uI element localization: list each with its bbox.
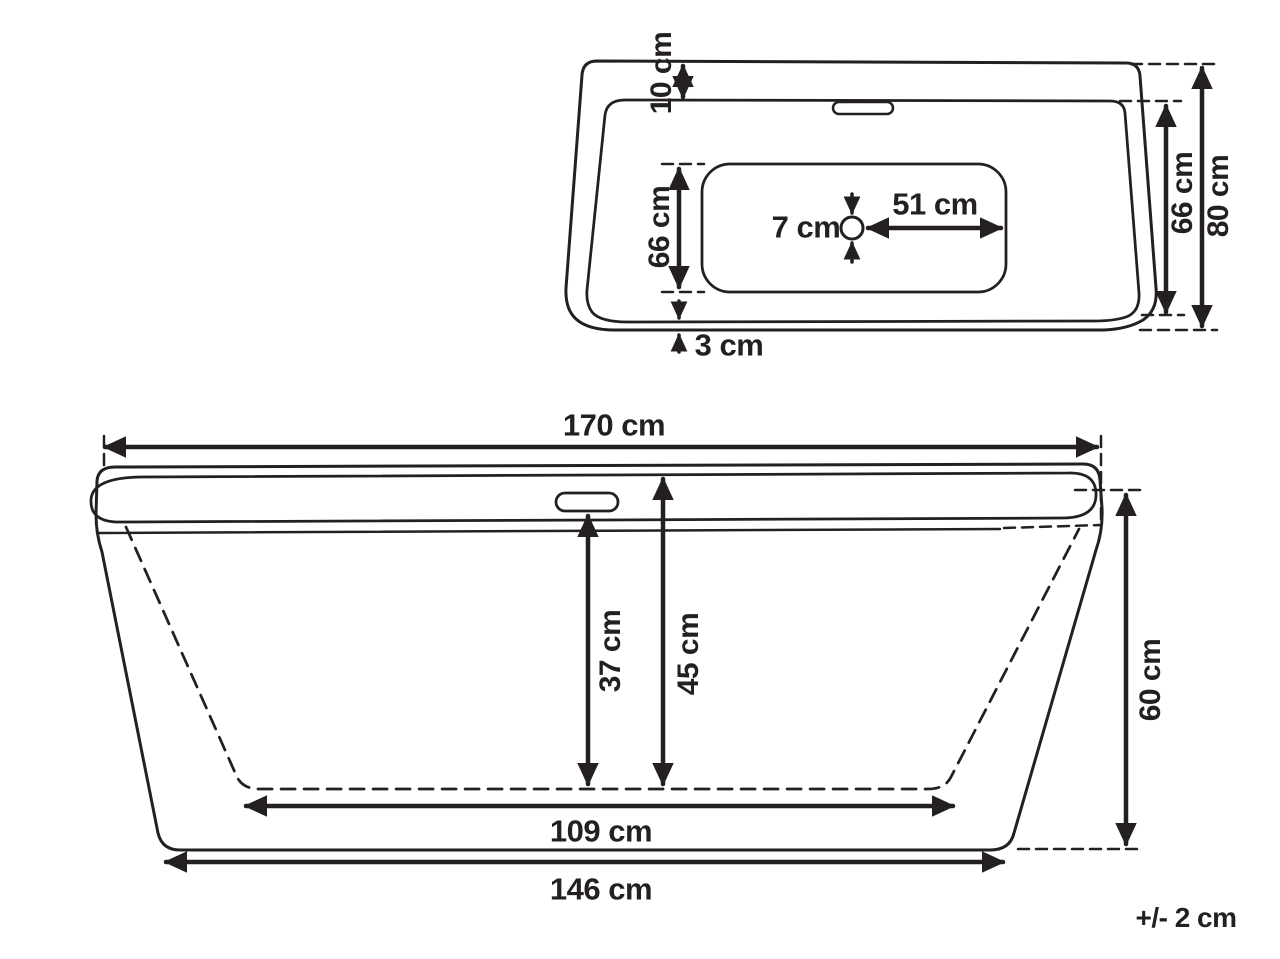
bathtub-dimension-diagram: 10 cm 66 cm 7 cm 51 cm 66 cm 80 cm 3 cm … <box>0 0 1280 959</box>
label-rim-bottom-offset: 3 cm <box>695 330 764 361</box>
side-view-overflow-slot <box>556 493 618 511</box>
label-overall-height: 60 cm <box>1136 639 1166 722</box>
label-basin-floor-width: 66 cm <box>645 186 675 269</box>
label-drain-diameter: 7 cm <box>772 212 841 243</box>
drain-hole <box>841 217 863 239</box>
label-overflow-depth: 37 cm <box>596 610 626 693</box>
label-base-length: 146 cm <box>550 874 652 905</box>
label-drain-to-edge: 51 cm <box>892 189 977 220</box>
label-rim-top-offset: 10 cm <box>647 32 677 115</box>
top-view-overflow-slot <box>833 102 893 114</box>
label-inner-rim-width: 66 cm <box>1168 152 1198 235</box>
label-inner-depth: 45 cm <box>674 613 704 696</box>
label-basin-floor-length: 109 cm <box>550 816 652 847</box>
side-view-rim-opening <box>91 473 1096 522</box>
label-tolerance-note: +/- 2 cm <box>1135 904 1236 932</box>
side-view-front-rim-edge <box>97 529 1000 533</box>
label-overall-width: 80 cm <box>1204 155 1234 238</box>
side-view-front-rim-edge-hidden <box>1004 525 1101 528</box>
label-overall-length: 170 cm <box>563 410 665 441</box>
